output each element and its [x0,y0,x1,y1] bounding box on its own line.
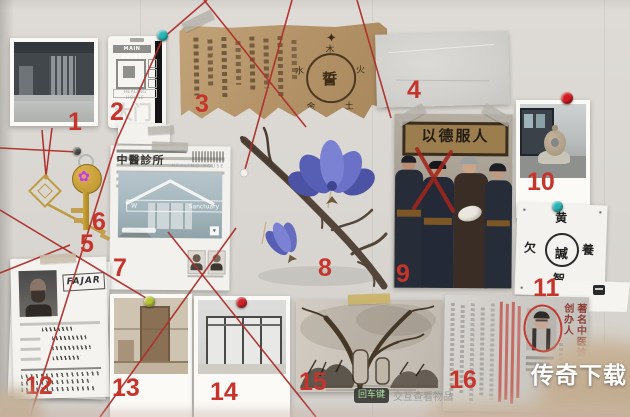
hud-hint: 回车键 交互查看物品 [354,388,453,403]
pushpin-red [561,92,573,104]
item-number-15: 15 [299,370,327,395]
flyer-overlay-right: Sanctuary [189,203,219,210]
card-mark-icon [148,69,157,78]
pushpin-teal [157,30,168,41]
stone-sculpture [544,130,566,156]
tape-strip [152,141,188,151]
portrait-thumb [208,250,226,274]
pushpin-green [144,296,155,307]
tape-strip [40,253,76,264]
window-photo[interactable] [194,296,290,417]
cabinet [118,340,134,362]
window-pane [524,114,533,128]
wall-shading-top [0,0,630,10]
floor [114,362,188,374]
side-wall [19,66,33,95]
wall-trim [114,328,188,330]
magnolia-branch[interactable] [232,126,402,294]
key-shaft [83,192,89,230]
headline-sub: 创办人 [559,303,575,336]
handwriting [52,345,90,350]
text-column [479,307,485,395]
window-pane [536,114,545,128]
card-tab [130,38,144,42]
thumb-caption-line [187,275,223,277]
item-number-13: 13 [112,376,140,401]
hint-text: 交互查看物品 [393,388,453,403]
dossier[interactable]: FAJAR [8,256,112,402]
baseboard [114,361,188,363]
form-line [21,348,41,351]
form-line [20,321,100,326]
sculpture-knob [552,125,558,131]
calligraphy-column [193,37,199,95]
divider [21,367,101,371]
seal-ring-char: 水 [295,64,304,77]
card-title: MAIN ENTRY [113,45,151,53]
key-bit [71,208,83,213]
calligraphy-column [263,38,269,88]
key-bit [74,218,83,223]
tape-strip [148,125,174,135]
emblem-ring-char: 養 [582,241,595,258]
corner-dot [599,211,601,213]
item-number-9: 9 [396,262,410,287]
red-mark-column [498,302,502,402]
entrance-gate [49,56,76,94]
flyer-masthead-en: HEALING HOUSE [171,164,224,169]
oath-scroll[interactable]: ✦ 誓 木 火 土 金 水 [179,22,389,122]
key-head: ✿ [72,164,102,194]
dossier-name: FAJAR [62,272,105,292]
pushpin-red [236,297,247,308]
pushpin-dark [73,147,81,155]
corner-dot [523,209,525,211]
flower-icon: ✿ [78,169,90,185]
red-mark-column [510,302,514,404]
window-frame [206,316,282,366]
calligraphy-column [277,36,283,96]
calligraphy-column [235,41,241,85]
item-number-3: 3 [195,92,209,117]
seal-center-char: 誓 [322,68,337,89]
seal-ring-char: 火 [356,63,365,76]
floor [198,364,286,374]
item-number-4: 4 [407,78,421,103]
item-number-16: 16 [449,368,477,393]
item-number-2: 2 [110,100,124,125]
item-number-12: 12 [25,374,53,399]
evidence-board: MAIN ENTRY HEALING HOUSE 大门 ✦ 誓 木 火 土 金 … [0,0,630,417]
red-mark-column [504,304,508,400]
sculpture-photo[interactable] [516,100,590,218]
item-number-6: 6 [92,210,106,235]
entrance-photo[interactable] [10,38,98,126]
handwriting [53,355,81,360]
handwriting [42,327,72,332]
calligraphy-column [249,37,255,93]
blank-note[interactable] [375,31,510,107]
text-column [489,304,495,400]
poster-plaque: 以德服人 [402,122,508,157]
oath-seal: 誓 木 火 土 金 水 [306,53,357,104]
hint-key-badge: 回车键 [354,388,389,403]
watermark: 传奇下载 [531,356,627,390]
item-number-7: 7 [113,256,127,281]
form-line [21,358,41,361]
barcode-icon [192,151,224,162]
seal-ring-char: 木 [325,42,334,55]
card-subtitle: HEALING HOUSE [113,89,157,98]
dossier-photo [18,270,57,317]
news-clipping[interactable]: 著名中医诊疗所 创办人 [443,295,589,413]
item-number-10: 10 [527,170,555,195]
item-number-11: 11 [533,276,559,301]
tape-strip [348,293,390,304]
card-mark-icon [148,79,157,88]
pushpin-teal [552,201,563,212]
emblem-circle: 諴 [544,232,579,267]
red-mark-column [516,306,520,398]
emblem-center-char: 諴 [555,243,569,262]
item-number-14: 14 [210,380,238,405]
handwriting [52,335,86,340]
form-line [20,338,40,341]
qr-code-icon [116,59,146,89]
calligraphy-column [207,39,213,87]
item-number-1: 1 [68,110,82,135]
calligraphy-column [221,37,227,99]
building-roof [14,42,94,53]
family-poster[interactable]: 以德服人 [393,114,512,289]
ground-path [14,101,94,122]
card-mark-icon [148,59,157,68]
paper-crease [389,43,495,52]
seal-ring-char: 金 [306,99,315,112]
stamp-icon [593,285,605,295]
portrait-thumb [188,250,206,274]
emblem-ring-char: 欠 [524,239,537,256]
corner-dot [521,287,523,289]
photo-corner-icon: ▾ [210,226,219,235]
seal-ring-char: 土 [344,99,353,112]
item-number-8: 8 [318,256,332,281]
